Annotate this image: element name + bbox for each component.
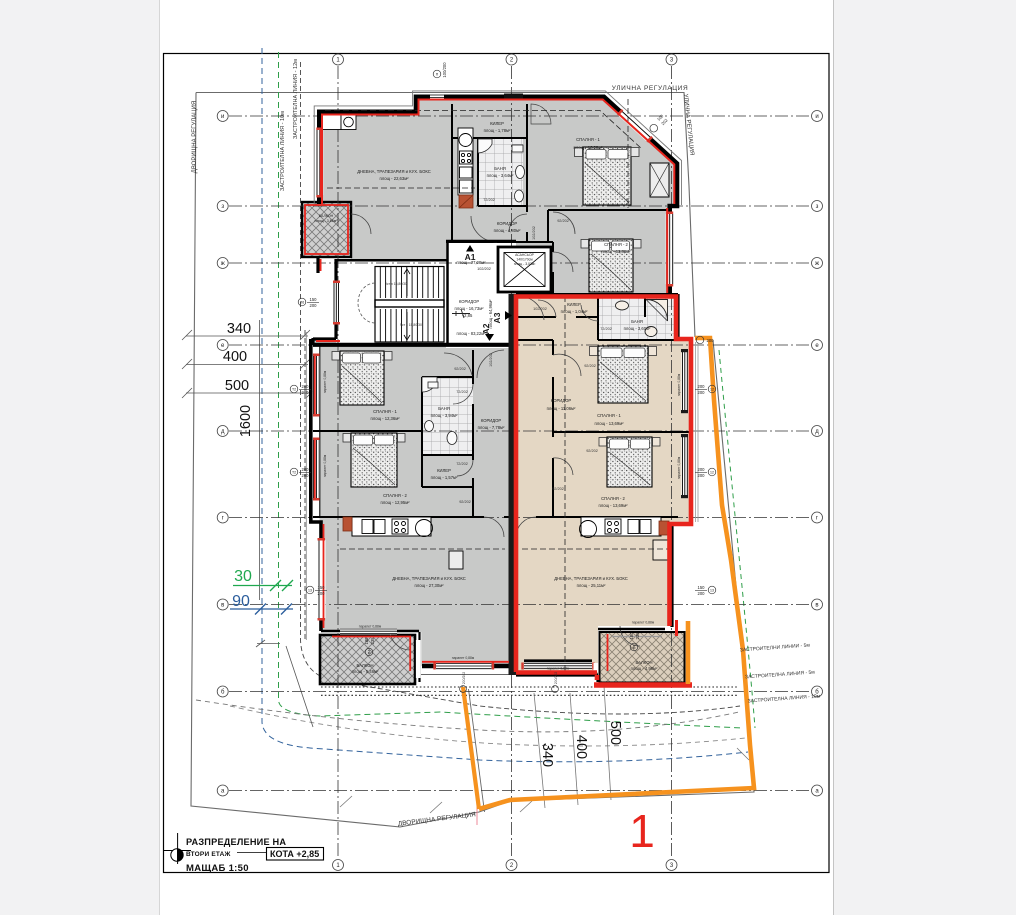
svg-text:СПАЛНЯ - 1: СПАЛНЯ - 1	[597, 413, 621, 418]
svg-text:ДНЕВНА, ТРАПЕЗАРИЯ и КУХ. БОКС: ДНЕВНА, ТРАПЕЗАРИЯ и КУХ. БОКС	[357, 169, 431, 174]
svg-text:90: 90	[232, 593, 250, 610]
svg-text:парапет 0,88м: парапет 0,88м	[323, 370, 327, 393]
svg-text:з: з	[221, 204, 224, 210]
svg-text:1: 1	[629, 805, 655, 857]
svg-text:площ - 12,36м²: площ - 12,36м²	[370, 416, 400, 421]
svg-text:площ - 1,78м²: площ - 1,78м²	[484, 128, 511, 133]
svg-text:БАНЯ: БАНЯ	[438, 406, 450, 411]
svg-text:72/202: 72/202	[456, 390, 468, 394]
svg-text:БАНЯ: БАНЯ	[631, 319, 643, 324]
svg-text:340: 340	[539, 743, 555, 767]
svg-text:площ - 12,81м²: площ - 12,81м²	[601, 249, 631, 254]
svg-text:72/202: 72/202	[456, 462, 468, 466]
svg-text:92/202: 92/202	[586, 449, 598, 453]
svg-text:КИЛЕР: КИЛЕР	[567, 302, 581, 307]
svg-text:парапет 0,88м: парапет 0,88м	[547, 667, 570, 671]
svg-text:площ - 13,69м²: площ - 13,69м²	[594, 421, 624, 426]
svg-text:парапет 0,88м: парапет 0,88м	[632, 621, 655, 625]
svg-text:Т2: Т2	[292, 388, 296, 392]
svg-text:П4: П4	[368, 650, 372, 655]
svg-text:и: и	[815, 114, 818, 120]
svg-text:150: 150	[318, 585, 326, 590]
svg-text:площ - 22,63м²: площ - 22,63м²	[379, 176, 409, 181]
svg-text:площ - 3,03м²: площ - 3,03м²	[514, 262, 536, 266]
svg-text:500: 500	[225, 378, 249, 394]
svg-text:МАЩАБ 1:50: МАЩАБ 1:50	[186, 863, 249, 874]
svg-text:200: 200	[302, 384, 310, 389]
svg-text:92/202: 92/202	[557, 219, 569, 223]
svg-text:200/202: 200/202	[554, 672, 558, 684]
svg-text:30: 30	[234, 568, 252, 585]
svg-text:СПАЛНЯ - 2: СПАЛНЯ - 2	[604, 242, 628, 247]
svg-text:б: б	[221, 690, 225, 696]
svg-text:А3: А3	[492, 312, 502, 323]
svg-text:13: 13	[308, 589, 312, 593]
svg-text:площ - 25,11м²: площ - 25,11м²	[577, 583, 606, 588]
svg-text:150: 150	[698, 585, 706, 590]
svg-text:площ - 3,66м²: площ - 3,66м²	[315, 219, 339, 223]
svg-text:КОРИДОР: КОРИДОР	[481, 418, 502, 423]
svg-text:500: 500	[607, 721, 623, 745]
svg-text:92/202: 92/202	[552, 487, 564, 491]
svg-text:СПАЛНЯ - 1: СПАЛНЯ - 1	[576, 137, 600, 142]
svg-text:92/202: 92/202	[584, 364, 596, 368]
svg-text:площ - 16,73м²: площ - 16,73м²	[454, 306, 484, 311]
svg-text:РАЗПРЕДЕЛЕНИЕ НА: РАЗПРЕДЕЛЕНИЕ НА	[186, 837, 286, 847]
svg-text:ж: ж	[221, 261, 225, 267]
svg-text:СПАЛНЯ - 2: СПАЛНЯ - 2	[601, 496, 625, 501]
svg-text:парапет 0,88м: парапет 0,88м	[677, 456, 681, 479]
svg-text:235: 235	[370, 637, 375, 645]
svg-text:АСАНСЬОР: АСАНСЬОР	[515, 253, 535, 257]
svg-text:180: 180	[629, 632, 634, 640]
svg-text:340: 340	[227, 321, 251, 337]
svg-text:180: 180	[364, 637, 369, 645]
svg-text:100/200: 100/200	[442, 62, 447, 78]
svg-text:200: 200	[302, 473, 310, 478]
svg-text:парапет 0,88м: парапет 0,88м	[452, 656, 475, 660]
svg-text:площ - 27,30м²: площ - 27,30м²	[414, 583, 444, 588]
svg-text:400: 400	[223, 349, 247, 365]
svg-text:Т2: Т2	[292, 471, 296, 475]
svg-text:КОРИДОР: КОРИДОР	[551, 398, 572, 403]
svg-text:102/202: 102/202	[489, 353, 493, 367]
svg-text:12: 12	[710, 471, 714, 475]
svg-text:ВТОРИ ЕТАЖ: ВТОРИ ЕТАЖ	[186, 851, 231, 858]
svg-text:площ - 16,08м²: площ - 16,08м²	[573, 145, 603, 150]
svg-text:ДНЕВНА, ТРАПЕЗАРИЯ и КУХ. БОКС: ДНЕВНА, ТРАПЕЗАРИЯ и КУХ. БОКС	[554, 576, 628, 581]
svg-text:400: 400	[573, 735, 589, 759]
svg-text:площ - 5,46м²: площ - 5,46м²	[352, 669, 379, 674]
svg-text:200: 200	[698, 591, 706, 596]
svg-text:з: з	[816, 204, 819, 210]
svg-text:парапет 0,88м: парапет 0,88м	[359, 625, 382, 629]
svg-text:площ - 3,60м²: площ - 3,60м²	[624, 326, 651, 331]
svg-text:П4: П4	[633, 645, 637, 650]
svg-text:235: 235	[635, 632, 640, 640]
svg-text:П6: П6	[300, 301, 305, 305]
svg-text:БАЛКОН: БАЛКОН	[357, 663, 374, 668]
svg-text:парапет 0,88м: парапет 0,88м	[323, 454, 327, 477]
svg-text:площ - 1,04м²: площ - 1,04м²	[561, 309, 588, 314]
svg-text:9ст х 15,80/30: 9ст х 15,80/30	[400, 323, 422, 327]
svg-text:д: д	[815, 429, 819, 435]
svg-text:72/202: 72/202	[483, 198, 495, 202]
svg-text:13: 13	[710, 589, 714, 593]
svg-text:площ - 11,06м²: площ - 11,06м²	[547, 406, 576, 411]
svg-text:в: в	[815, 603, 818, 609]
svg-text:КОТА +2,85: КОТА +2,85	[270, 849, 319, 859]
svg-text:200: 200	[698, 473, 706, 478]
svg-text:СПАЛНЯ - 2: СПАЛНЯ - 2	[383, 493, 407, 498]
svg-text:ж: ж	[815, 261, 819, 267]
svg-text:площ - 4,80м²: площ - 4,80м²	[494, 228, 521, 233]
svg-text:72/202: 72/202	[600, 327, 612, 331]
svg-text:102/202: 102/202	[532, 226, 536, 240]
svg-text:площ - 3,64м²: площ - 3,64м²	[487, 173, 514, 178]
svg-text:СПАЛНЯ - 1: СПАЛНЯ - 1	[373, 409, 397, 414]
svg-text:ЗАСТРОИТЕЛНА ЛИНИЯ - 10м: ЗАСТРОИТЕЛНА ЛИНИЯ - 10м	[280, 111, 286, 191]
svg-text:9ст х 15,80/30: 9ст х 15,80/30	[385, 282, 407, 286]
svg-text:1600: 1600	[238, 405, 254, 437]
svg-text:92/202: 92/202	[459, 500, 471, 504]
svg-text:150: 150	[310, 297, 318, 302]
svg-text:200: 200	[698, 467, 706, 472]
svg-text:200: 200	[318, 591, 326, 596]
svg-text:92/202: 92/202	[454, 367, 466, 371]
svg-text:ЗАСТРОИТЕЛНА ЛИНИЯ - 12м: ЗАСТРОИТЕЛНА ЛИНИЯ - 12м	[293, 59, 299, 139]
svg-text:площ - 12,95м²: площ - 12,95м²	[380, 500, 410, 505]
svg-text:УЛИЧНА РЕГУЛАЦИЯ: УЛИЧНА РЕГУЛАЦИЯ	[612, 85, 689, 92]
svg-text:площ - 7,78м²: площ - 7,78м²	[478, 425, 505, 430]
svg-text:200/202: 200/202	[462, 672, 466, 684]
svg-text:102/202: 102/202	[477, 267, 491, 271]
svg-text:КОРИДОР: КОРИДОР	[459, 299, 480, 304]
svg-text:200: 200	[302, 390, 310, 395]
svg-text:200: 200	[698, 384, 706, 389]
svg-text:площ - 4,98м²: площ - 4,98м²	[631, 666, 658, 671]
svg-text:ДНЕВНА, ТРАПЕЗАРИЯ и КУХ. БОКС: ДНЕВНА, ТРАПЕЗАРИЯ и КУХ. БОКС	[392, 576, 466, 581]
svg-text:ДВОРИЩНА РЕГУЛАЦИЯ: ДВОРИЩНА РЕГУЛАЦИЯ	[192, 101, 198, 173]
svg-text:в: в	[221, 603, 224, 609]
svg-text:площ - 3,94м²: площ - 3,94м²	[431, 413, 458, 418]
svg-text:д: д	[221, 429, 225, 435]
svg-text:КИЛЕР: КИЛЕР	[437, 468, 451, 473]
svg-text:парапет 0,88м: парапет 0,88м	[677, 373, 681, 396]
svg-text:200: 200	[310, 303, 318, 308]
svg-text:200: 200	[302, 467, 310, 472]
svg-text:200: 200	[698, 390, 706, 395]
svg-text:200: 200	[707, 338, 715, 343]
svg-text:и: и	[221, 114, 224, 120]
svg-text:КИЛЕР: КИЛЕР	[490, 121, 504, 126]
svg-text:А1: А1	[465, 252, 476, 262]
svg-text:БАНЯ: БАНЯ	[494, 166, 506, 171]
svg-text:102/202: 102/202	[533, 307, 547, 311]
svg-text:площ - 1,57м²: площ - 1,57м²	[431, 475, 458, 480]
svg-text:БАЛКОН: БАЛКОН	[636, 660, 653, 665]
svg-text:А2: А2	[481, 323, 491, 334]
svg-text:БАЛКОН: БАЛКОН	[319, 214, 334, 218]
svg-text:12: 12	[710, 388, 714, 392]
svg-text:площ - 13,69м²: площ - 13,69м²	[598, 503, 628, 508]
svg-text:140/170см: 140/170см	[516, 258, 533, 262]
svg-text:КОРИДОР: КОРИДОР	[497, 221, 518, 226]
